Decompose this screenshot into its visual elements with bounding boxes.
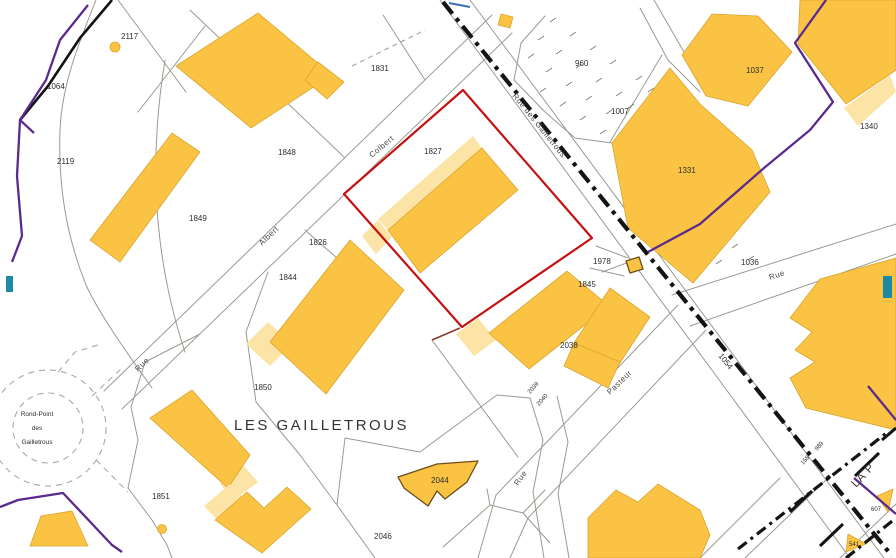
parcel-label-1064: 1064 — [47, 82, 65, 91]
place-label-rond-point-line3: Gailletrous — [21, 439, 53, 446]
building — [588, 484, 710, 558]
parcel-label-1331: 1331 — [678, 166, 696, 175]
parcel-label-1850: 1850 — [254, 383, 272, 392]
building — [150, 390, 250, 488]
street-label-rue-south: Rue — [512, 469, 529, 487]
parcel-label-989: 989 — [814, 440, 826, 452]
parcel-label-158: 158 — [800, 454, 812, 466]
building — [790, 258, 896, 430]
parcel-label-1845: 1845 — [578, 280, 596, 289]
parcel-label-1827: 1827 — [424, 147, 442, 156]
parcel-label-2046: 2046 — [374, 532, 392, 541]
parcel-label-1848: 1848 — [278, 148, 296, 157]
street-label-rue-west: Rue — [133, 356, 151, 374]
building — [176, 13, 332, 128]
street-label-colbert: Colbert — [368, 134, 396, 160]
roundabout-approach — [58, 345, 128, 492]
parcel-line — [383, 15, 425, 80]
parcel-line — [432, 340, 518, 457]
teal-marker — [6, 276, 13, 292]
parcel-label-2117: 2117 — [121, 32, 139, 41]
parcel-label-1844: 1844 — [279, 273, 297, 282]
parcel-label-2119: 2119 — [57, 157, 75, 166]
parcel-label-1849: 1849 — [189, 214, 207, 223]
boundary-black-segment — [790, 428, 896, 546]
parcel-label-2044: 2044 — [431, 476, 449, 485]
teal-marker — [883, 276, 892, 298]
parcel-label-1978: 1978 — [593, 257, 611, 266]
parcel-label-960: 960 — [575, 59, 589, 68]
street-label-rue-east: Rue — [768, 268, 786, 282]
map-viewport: 2117 1064 2119 1831 1848 1827 960 1007 1… — [0, 0, 896, 558]
small-building-dot — [158, 525, 167, 534]
purple-boundary — [20, 120, 34, 133]
parcel-label-1831: 1831 — [371, 64, 389, 73]
roundabout — [0, 345, 128, 492]
parcel-label-2038: 2038 — [560, 341, 578, 350]
road-casing-black — [20, 0, 112, 120]
building-annex-light — [456, 318, 496, 356]
roundabout-outer-circle — [0, 370, 106, 486]
roundabout-inner-circle — [13, 393, 83, 463]
parcel-label-2040: 2040 — [536, 393, 550, 407]
small-building — [626, 257, 643, 273]
building-parcel-1037 — [682, 14, 792, 106]
building — [270, 240, 404, 394]
small-building-dot — [110, 42, 120, 52]
small-building — [498, 14, 513, 28]
blue-tick — [449, 3, 470, 7]
cadastral-map[interactable]: 2117 1064 2119 1831 1848 1827 960 1007 1… — [0, 0, 896, 558]
parcel-line — [530, 396, 569, 558]
building — [90, 133, 200, 262]
parcel-label-1851: 1851 — [152, 492, 170, 501]
parcel-label-1036: 1036 — [741, 258, 759, 267]
street-label-albert: Albert — [257, 224, 281, 247]
parcel-line-dashed — [352, 30, 425, 66]
parcel-label-1007: 1007 — [611, 107, 629, 116]
parcel-label-1037: 1037 — [746, 66, 764, 75]
building — [30, 511, 88, 546]
parcel-label-541: 541 — [849, 542, 860, 548]
parcel-label-607: 607 — [871, 507, 882, 513]
parcel-label-1054: 1054 — [716, 352, 735, 372]
place-label-les-gailletrous: LES GAILLETROUS — [234, 417, 409, 434]
street-label-rue-des-gailletrous: Rue des Gailletrous — [510, 92, 567, 160]
parcel-label-1826: 1826 — [309, 238, 327, 247]
parcel-label-2039: 2039 — [527, 381, 541, 395]
parcel-label-1340: 1340 — [860, 122, 878, 131]
parcel-boundary-brown — [432, 328, 460, 340]
place-label-rond-point-line1: Rond-Point — [21, 411, 54, 418]
place-label-rond-point-line2: des — [32, 425, 43, 432]
